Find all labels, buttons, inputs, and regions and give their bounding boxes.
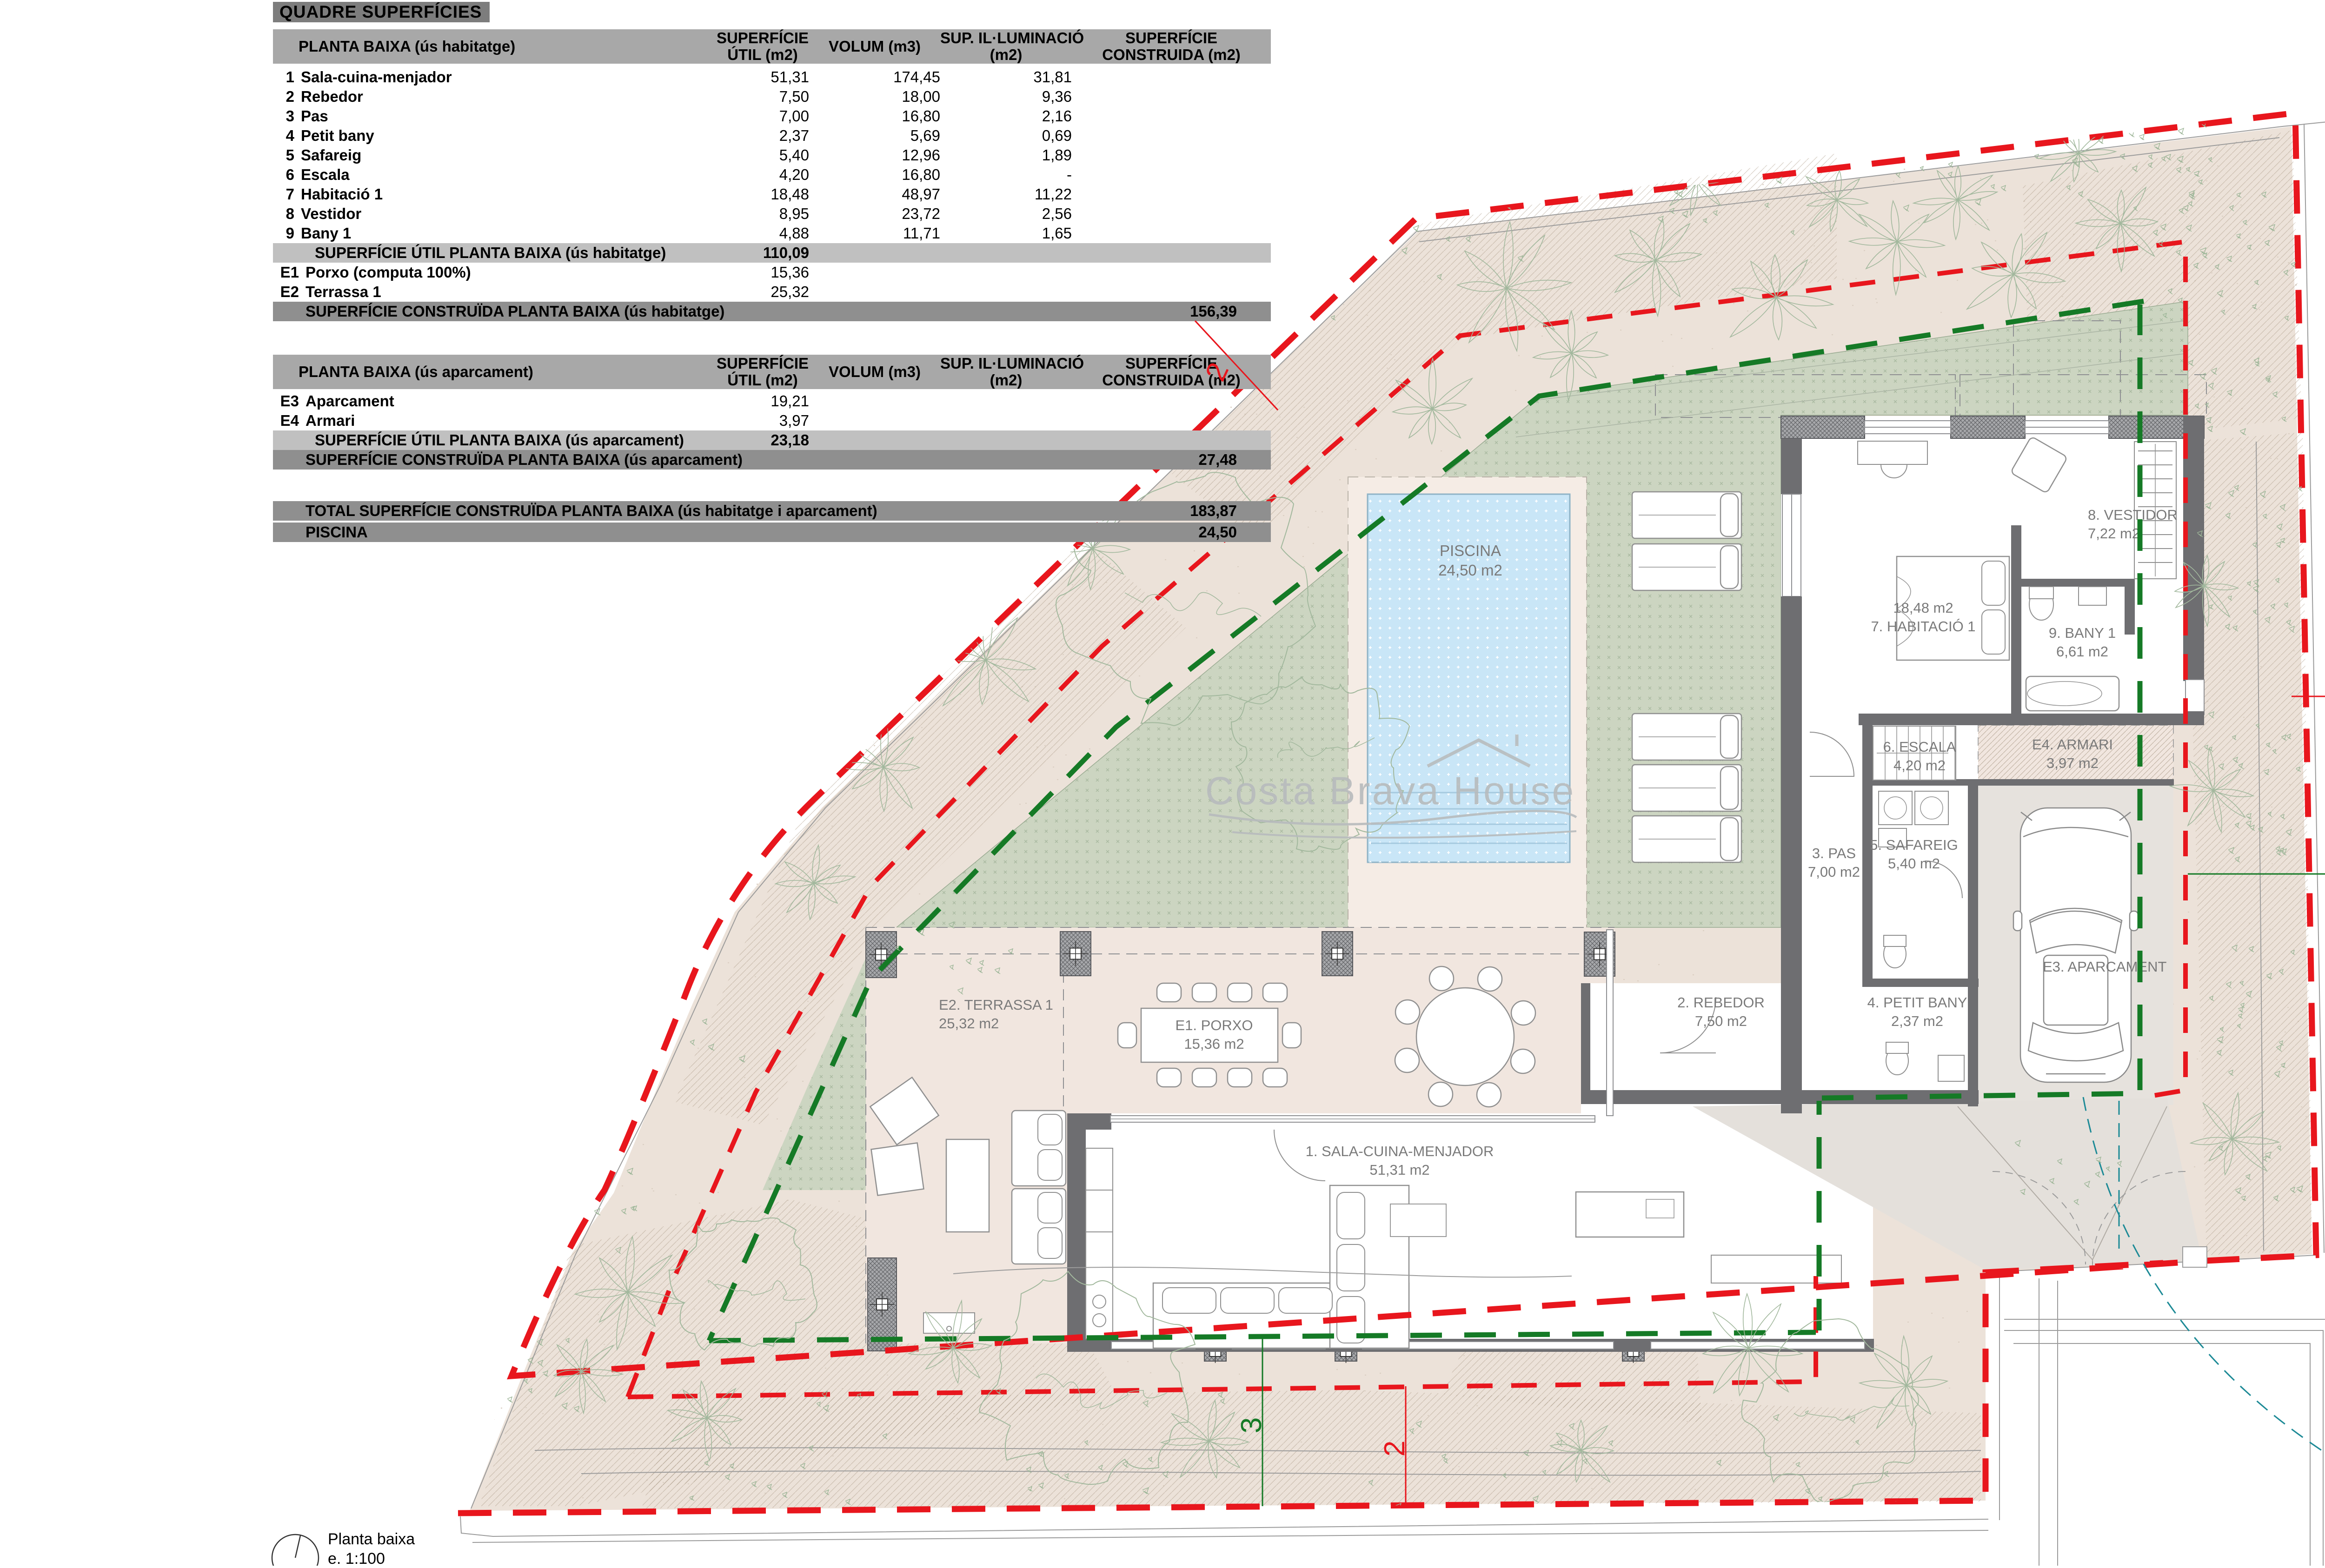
svg-text:3: 3 [1236, 1417, 1268, 1433]
svg-text:7,22 m2: 7,22 m2 [2088, 525, 2140, 542]
svg-text:2,37 m2: 2,37 m2 [1891, 1013, 1943, 1029]
svg-text:5,40 m2: 5,40 m2 [1888, 855, 1940, 872]
svg-text:7,50 m2: 7,50 m2 [1695, 1013, 1747, 1029]
svg-text:15,36 m2: 15,36 m2 [1184, 1036, 1244, 1052]
svg-text:24,50 m2: 24,50 m2 [1438, 562, 1502, 579]
svg-text:5. SAFAREIG: 5. SAFAREIG [1870, 837, 1958, 853]
svg-text:9. BANY 1: 9. BANY 1 [2049, 625, 2116, 641]
svg-text:E3. APARCAMENT: E3. APARCAMENT [2043, 959, 2167, 975]
svg-text:2. REBEDOR: 2. REBEDOR [1677, 994, 1765, 1011]
svg-text:2: 2 [1199, 358, 1235, 386]
svg-text:Costa Brava House: Costa Brava House [1205, 769, 1575, 813]
svg-text:E4. ARMARI: E4. ARMARI [2032, 736, 2113, 753]
svg-text:2: 2 [1379, 1441, 1411, 1456]
svg-text:18,48 m2: 18,48 m2 [1893, 600, 1953, 616]
svg-text:7. HABITACIÓ 1: 7. HABITACIÓ 1 [1871, 618, 1975, 635]
svg-text:3,97 m2: 3,97 m2 [2046, 755, 2099, 771]
svg-text:3. PAS: 3. PAS [1812, 845, 1856, 861]
svg-text:51,31 m2: 51,31 m2 [1369, 1162, 1429, 1178]
svg-text:E2. TERRASSA 1: E2. TERRASSA 1 [939, 997, 1053, 1013]
svg-text:6. ESCALA: 6. ESCALA [1883, 739, 1956, 755]
svg-text:PISCINA: PISCINA [1440, 542, 1501, 559]
svg-text:4. PETIT BANY: 4. PETIT BANY [1867, 994, 1967, 1011]
svg-text:4,20 m2: 4,20 m2 [1893, 757, 1946, 774]
svg-text:1. SALA-CUINA-MENJADOR: 1. SALA-CUINA-MENJADOR [1306, 1143, 1494, 1159]
svg-text:E1. PORXO: E1. PORXO [1175, 1017, 1253, 1033]
svg-text:7,00 m2: 7,00 m2 [1808, 864, 1860, 880]
svg-text:6,61 m2: 6,61 m2 [2056, 643, 2108, 660]
svg-text:8. VESTIDOR: 8. VESTIDOR [2088, 507, 2178, 523]
svg-text:25,32 m2: 25,32 m2 [939, 1015, 999, 1032]
